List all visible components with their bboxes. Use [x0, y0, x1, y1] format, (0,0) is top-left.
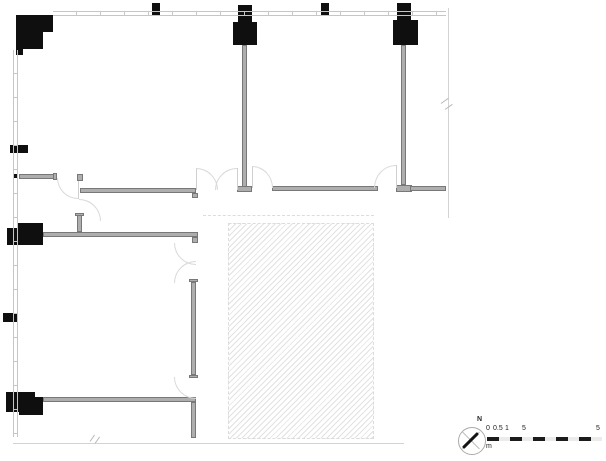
scale-unit-label: m	[486, 443, 492, 451]
scale-segment-dark	[510, 437, 522, 441]
door-leaf-double-right	[237, 168, 238, 190]
scale-label-05: 0.5	[493, 425, 503, 433]
bottom-boundary-line	[13, 443, 404, 444]
scale-label-5-end: 5	[596, 425, 600, 433]
wall-mid-column	[242, 45, 247, 187]
wall-center-room-bottom	[272, 186, 378, 191]
wall-mid-column-foot	[237, 186, 252, 192]
scale-segment-light	[499, 437, 510, 441]
wall-right-room-bottom	[410, 186, 446, 191]
scale-segment-dark	[579, 437, 591, 441]
column-left-bottom-b	[19, 397, 43, 415]
column-right-top-body	[393, 20, 418, 45]
column-mid-top-body	[233, 22, 257, 45]
scale-segment-light	[591, 437, 602, 441]
door-arc-double-right	[215, 168, 237, 190]
north-compass: N	[456, 415, 490, 457]
scale-label-5-mid: 5	[522, 425, 526, 433]
column-top-left-a	[16, 15, 53, 32]
floor-plan-drawing	[0, 0, 606, 461]
scale-segment-dark	[487, 437, 499, 441]
break-mark-bottom	[90, 435, 95, 442]
north-label: N	[477, 416, 482, 423]
wall-vestibule-stub	[19, 174, 55, 179]
wall-room2-right	[191, 282, 196, 375]
scale-segment-dark	[533, 437, 545, 441]
wall-vestibule-bottom	[80, 188, 196, 193]
right-boundary-line	[448, 8, 449, 218]
scale-segment-light	[522, 437, 533, 441]
scale-segment-light	[568, 437, 579, 441]
door-arc-swing-lower	[174, 261, 196, 283]
wall-room3-top	[43, 397, 196, 402]
column-top-left-b	[16, 32, 43, 49]
scale-segment-dark	[556, 437, 568, 441]
door-arc-room3	[174, 377, 196, 399]
door-arc-vestibule-2	[79, 199, 101, 221]
scale-segment-light	[545, 437, 556, 441]
door-leaf-right-room	[396, 165, 397, 188]
door-leaf-vestibule	[78, 181, 79, 199]
floor-plan-canvas: N 0 0.5 1 5 5 m	[0, 0, 606, 461]
hatch-guide-line	[203, 215, 374, 216]
curtain-wall-top	[53, 11, 446, 16]
door-arc-mid-east	[252, 166, 273, 188]
hatched-zone	[228, 223, 374, 439]
wall-room3-right	[191, 402, 196, 438]
scale-label-0: 0	[486, 425, 490, 433]
door-arc-vestibule-1	[57, 178, 78, 199]
wall-right-column	[401, 45, 406, 185]
door-arc-right-room	[374, 165, 396, 188]
curtain-wall-left	[13, 50, 18, 437]
scale-label-1: 1	[505, 425, 509, 433]
wall-vestibule-bottom-cap	[192, 193, 198, 198]
wall-room2-top	[43, 232, 198, 237]
